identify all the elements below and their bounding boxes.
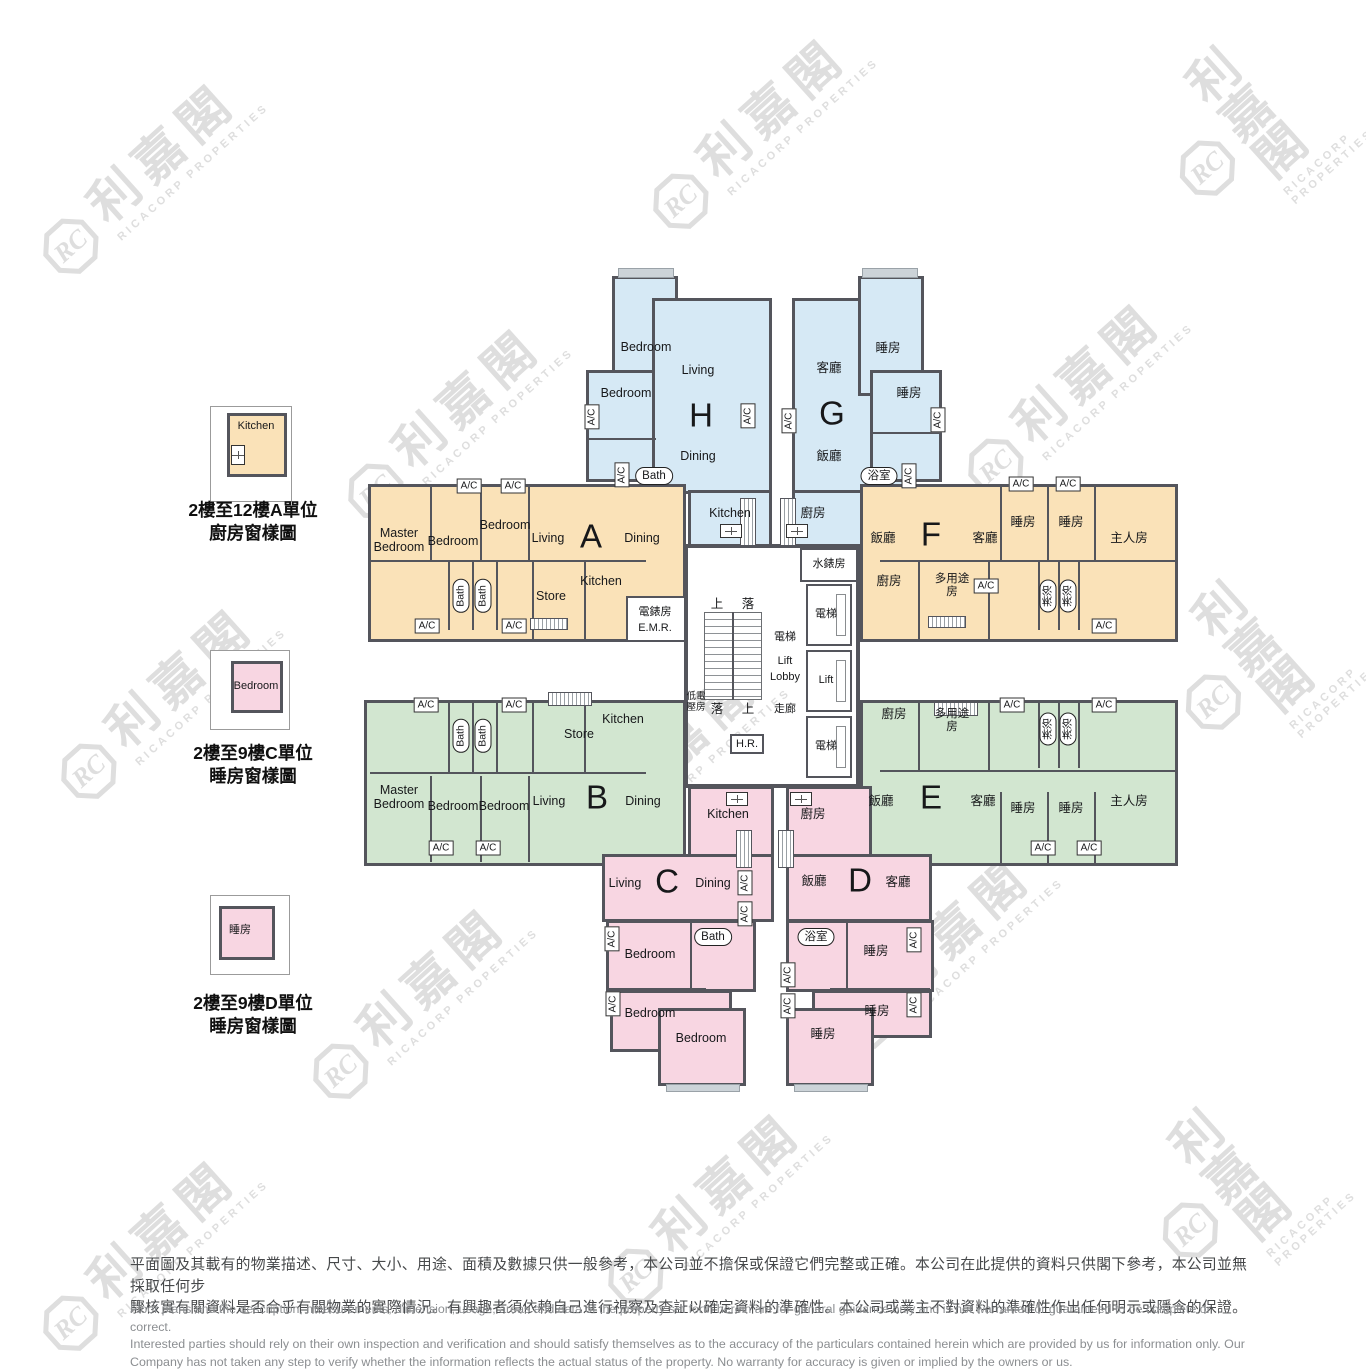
ac-tag: A/C bbox=[615, 463, 630, 488]
stair-divider bbox=[732, 612, 734, 700]
ac-tag: A/C bbox=[1077, 841, 1102, 856]
wall bbox=[1000, 792, 1002, 864]
ac-tag: A/C bbox=[974, 579, 999, 594]
disclaimer-line: Company has not taken any step to verify… bbox=[130, 1354, 1248, 1371]
room-label: 客廳 bbox=[972, 531, 997, 545]
room-label: 客廳 bbox=[885, 875, 910, 889]
room-label: Master Bedroom bbox=[368, 526, 430, 554]
floor-plan-page: { "watermark": {"cn": "利嘉閣", "en": "RICA… bbox=[0, 0, 1366, 1366]
wall bbox=[880, 560, 1176, 562]
ac-tag: A/C bbox=[741, 404, 756, 429]
room-label: Dining bbox=[680, 449, 715, 463]
room-label: Kitchen bbox=[709, 506, 751, 520]
room-label: 水錶房 bbox=[813, 558, 846, 570]
shower-pill: 淋浴 bbox=[1040, 580, 1057, 613]
wall bbox=[1000, 486, 1002, 562]
room-label: Bedroom bbox=[676, 1031, 727, 1045]
stair-label: 落 bbox=[711, 702, 724, 716]
ac-tag: A/C bbox=[502, 619, 527, 634]
window-sill bbox=[618, 268, 674, 278]
room-label: 飯廳 bbox=[868, 794, 893, 808]
emr-room bbox=[626, 596, 686, 642]
room-label: Bedroom bbox=[479, 799, 530, 813]
low-voltage-room-label: 低電壓房 bbox=[683, 692, 709, 714]
wall bbox=[496, 560, 498, 630]
wall bbox=[918, 702, 920, 770]
room-label: Bedroom bbox=[480, 518, 531, 532]
emr-label: E.M.R. bbox=[638, 622, 672, 634]
wall bbox=[584, 560, 586, 640]
room-label: 睡房 bbox=[1010, 515, 1035, 529]
room-label: 客廳 bbox=[816, 361, 841, 375]
room-label: 客廳 bbox=[970, 794, 995, 808]
room-label: Bedroom bbox=[625, 1006, 676, 1020]
wall bbox=[608, 988, 706, 990]
unit-f-area bbox=[860, 484, 1178, 642]
bath-pill: Bath bbox=[453, 719, 470, 753]
room-label: Bedroom bbox=[428, 799, 479, 813]
bath-pill: Bath bbox=[694, 928, 732, 946]
wall bbox=[448, 560, 450, 630]
legend-caption: 2樓至9樓C單位 bbox=[193, 740, 313, 765]
room-label: 睡房 bbox=[864, 1004, 889, 1018]
unit-letter: C bbox=[655, 864, 679, 901]
ac-tag: A/C bbox=[585, 405, 600, 430]
bath-pill: Bath bbox=[635, 467, 673, 485]
room-label: Kitchen bbox=[602, 712, 644, 726]
ac-tag: A/C bbox=[1000, 698, 1025, 713]
lift-door bbox=[836, 726, 846, 768]
room-label: 睡房 bbox=[896, 386, 921, 400]
lobby-label: Lift bbox=[778, 655, 793, 667]
hose-reel-label: H.R. bbox=[736, 738, 758, 750]
unit-letter: A bbox=[580, 519, 602, 556]
core-wall bbox=[684, 544, 688, 788]
ac-tag: A/C bbox=[931, 408, 946, 433]
wall bbox=[370, 772, 646, 774]
window-sill bbox=[862, 268, 918, 278]
room-label: Bedroom bbox=[621, 340, 672, 354]
stair-label: 上 bbox=[742, 702, 755, 716]
wall bbox=[1078, 562, 1080, 630]
sink-icon bbox=[720, 524, 742, 538]
wall bbox=[1094, 486, 1096, 562]
ac-tag: A/C bbox=[429, 841, 454, 856]
window-hatch bbox=[548, 692, 592, 706]
disclaimer-line: Floor plans and the description, measure… bbox=[130, 1301, 1248, 1336]
room-label: 多用途房 bbox=[932, 573, 972, 599]
sink-icon bbox=[790, 792, 812, 806]
lift-label: 電梯 bbox=[815, 608, 837, 620]
ac-tag: A/C bbox=[738, 871, 753, 896]
lift-door bbox=[836, 660, 846, 702]
room-label: 廚房 bbox=[800, 506, 825, 520]
wall bbox=[846, 922, 848, 990]
ac-tag: A/C bbox=[907, 993, 922, 1018]
room-label: 廚房 bbox=[800, 807, 825, 821]
room-label: Bedroom bbox=[234, 680, 279, 692]
disclaimer-english: Floor plans and the description, measure… bbox=[130, 1301, 1248, 1371]
unit-letter: D bbox=[848, 863, 872, 900]
bath-pill: 浴室 bbox=[798, 928, 835, 946]
wall bbox=[918, 562, 920, 640]
legend-caption: 廚房窗樣圖 bbox=[209, 520, 297, 545]
shower-pill: 淋浴 bbox=[1060, 580, 1077, 613]
window-sill bbox=[666, 1084, 740, 1092]
ac-tag: A/C bbox=[907, 928, 922, 953]
bath-pill: 浴室 bbox=[861, 467, 898, 485]
duct-hatch bbox=[736, 830, 752, 868]
room-label: 飯廳 bbox=[816, 449, 841, 463]
duct-hatch bbox=[778, 830, 794, 868]
disclaimer-line: Interested parties should rely on their … bbox=[130, 1336, 1248, 1354]
room-label: 飯廳 bbox=[801, 874, 826, 888]
room-label: Kitchen bbox=[707, 807, 749, 821]
lift-door bbox=[836, 594, 846, 636]
room-label: Master Bedroom bbox=[368, 783, 430, 811]
room-label: 睡房 bbox=[1058, 515, 1083, 529]
wall bbox=[1047, 486, 1049, 562]
legend-caption: 睡房窗樣圖 bbox=[209, 1013, 297, 1038]
room-label: 飯廳 bbox=[870, 531, 895, 545]
room-label: Kitchen bbox=[580, 574, 622, 588]
room-label: Dining bbox=[695, 876, 730, 890]
room-label: Dining bbox=[624, 531, 659, 545]
emr-label: 電錶房 bbox=[639, 606, 672, 618]
wall bbox=[448, 702, 450, 772]
wall bbox=[880, 770, 1176, 772]
room-label: 睡房 bbox=[1010, 801, 1035, 815]
ac-tag: A/C bbox=[1009, 477, 1034, 492]
room-label: Bedroom bbox=[428, 534, 479, 548]
ac-tag: A/C bbox=[606, 992, 621, 1017]
lobby-label: 電梯 bbox=[774, 631, 796, 643]
room-label: 睡房 bbox=[863, 944, 888, 958]
room-label: 睡房 bbox=[229, 924, 251, 936]
stair-label: 上 bbox=[711, 597, 724, 611]
lift-label: Lift bbox=[819, 674, 834, 686]
unit-e-area bbox=[860, 700, 1178, 866]
legend-caption: 睡房窗樣圖 bbox=[209, 763, 297, 788]
core-wall bbox=[684, 784, 860, 788]
sink-icon bbox=[726, 792, 748, 806]
sink-icon bbox=[786, 524, 808, 538]
room-label: Bedroom bbox=[601, 386, 652, 400]
unit-letter: E bbox=[920, 780, 942, 817]
stair-label: 落 bbox=[742, 597, 755, 611]
unit-letter: G bbox=[819, 396, 845, 433]
unit-letter: B bbox=[586, 780, 608, 817]
lift-label: 電梯 bbox=[815, 740, 837, 752]
duct-hatch bbox=[780, 498, 796, 546]
shower-pill: 淋浴 bbox=[1060, 713, 1077, 746]
wall bbox=[370, 560, 646, 562]
wall bbox=[830, 988, 930, 990]
room-label: Store bbox=[564, 727, 594, 741]
disclaimer-line: 平面圖及其載有的物業描述、尺寸、大小、用途、面積及數據只供一般參考，本公司並不擔… bbox=[130, 1255, 1248, 1298]
ac-tag: A/C bbox=[902, 464, 917, 489]
room-label: Living bbox=[533, 794, 566, 808]
room-label: Living bbox=[682, 363, 715, 377]
legend-caption: 2樓至9樓D單位 bbox=[193, 990, 313, 1015]
ac-tag: A/C bbox=[781, 994, 796, 1019]
room-label: 睡房 bbox=[810, 1027, 835, 1041]
room-label: 多用途房 bbox=[932, 708, 972, 734]
room-label: 睡房 bbox=[1058, 801, 1083, 815]
shower-pill: 淋浴 bbox=[1040, 713, 1057, 746]
ac-tag: A/C bbox=[605, 927, 620, 952]
ac-tag: A/C bbox=[414, 698, 439, 713]
room-label: 廚房 bbox=[881, 707, 906, 721]
ac-tag: A/C bbox=[415, 619, 440, 634]
ac-tag: A/C bbox=[476, 841, 501, 856]
room-label: Living bbox=[532, 531, 565, 545]
bath-pill: Bath bbox=[453, 579, 470, 613]
window-hatch bbox=[928, 616, 966, 628]
unit-d-tower bbox=[786, 1008, 874, 1086]
room-label: Kitchen bbox=[238, 420, 275, 432]
room-label: Bedroom bbox=[625, 947, 676, 961]
room-label: 廚房 bbox=[876, 574, 901, 588]
ac-tag: A/C bbox=[1092, 619, 1117, 634]
wall bbox=[532, 700, 534, 772]
room-label: 主人房 bbox=[1110, 531, 1148, 545]
ac-tag: A/C bbox=[1031, 841, 1056, 856]
wall bbox=[430, 486, 432, 562]
legend-caption: 2樓至12樓A單位 bbox=[188, 497, 317, 522]
unit-letter: F bbox=[921, 517, 941, 554]
room-label: Dining bbox=[625, 794, 660, 808]
ac-tag: A/C bbox=[457, 479, 482, 494]
wall bbox=[496, 702, 498, 772]
ac-tag: A/C bbox=[502, 698, 527, 713]
unit-letter: H bbox=[689, 398, 713, 435]
ac-tag: A/C bbox=[1056, 477, 1081, 492]
sink-icon bbox=[231, 445, 245, 465]
room-label: Living bbox=[609, 876, 642, 890]
bath-pill: Bath bbox=[475, 579, 492, 613]
room-label: 睡房 bbox=[875, 341, 900, 355]
wall bbox=[528, 776, 530, 862]
window-sill bbox=[794, 1084, 868, 1092]
corridor-label: 走廊 bbox=[774, 703, 796, 715]
ac-tag: A/C bbox=[738, 902, 753, 927]
ac-tag: A/C bbox=[782, 409, 797, 434]
wall bbox=[1078, 702, 1080, 768]
room-label: 主人房 bbox=[1110, 794, 1148, 808]
ac-tag: A/C bbox=[501, 479, 526, 494]
lobby-label: Lobby bbox=[770, 671, 800, 683]
wall bbox=[988, 562, 990, 640]
wall bbox=[586, 438, 656, 440]
wall bbox=[988, 702, 990, 770]
floor-plan: 水錶房 電梯 Lift 電梯 上 落 落 上 電梯 Lift Lobby 走廊 … bbox=[0, 0, 1366, 1366]
bath-pill: Bath bbox=[475, 719, 492, 753]
ac-tag: A/C bbox=[781, 963, 796, 988]
window-hatch bbox=[530, 618, 568, 630]
room-label: Store bbox=[536, 589, 566, 603]
wall bbox=[690, 922, 692, 990]
ac-tag: A/C bbox=[1092, 698, 1117, 713]
